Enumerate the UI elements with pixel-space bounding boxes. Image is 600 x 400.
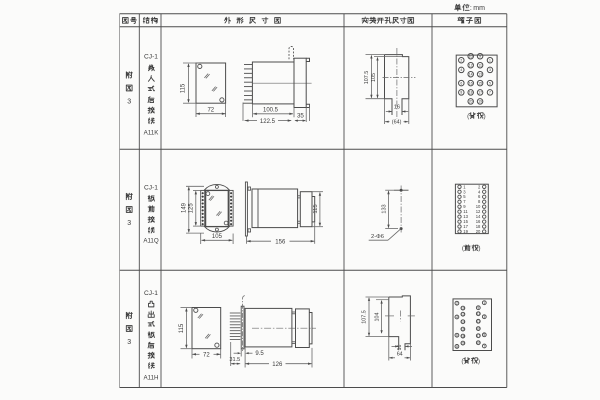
svg-text:A11Q: A11Q: [143, 237, 159, 244]
svg-text:18: 18: [469, 91, 473, 95]
svg-text:19: 19: [463, 229, 468, 234]
svg-text:12: 12: [469, 64, 473, 68]
svg-text:8: 8: [456, 345, 458, 349]
svg-text:107.5: 107.5: [362, 310, 368, 324]
svg-text:35: 35: [297, 112, 304, 119]
svg-text:A11K: A11K: [144, 130, 160, 137]
svg-text:CJ-1: CJ-1: [144, 53, 158, 60]
svg-text:): ): [484, 113, 486, 120]
svg-text:5: 5: [489, 81, 491, 85]
svg-text:15: 15: [476, 327, 480, 331]
svg-text:125: 125: [189, 203, 195, 214]
svg-text:2-Φ6: 2-Φ6: [371, 234, 384, 240]
svg-text:20: 20: [461, 342, 465, 346]
svg-text:16: 16: [397, 345, 403, 351]
svg-text:64: 64: [397, 352, 403, 358]
svg-text:13: 13: [476, 320, 480, 324]
svg-text:3: 3: [489, 68, 491, 72]
svg-text:4: 4: [456, 315, 458, 319]
svg-text:149: 149: [182, 202, 188, 213]
svg-text:9.5: 9.5: [255, 351, 264, 357]
svg-text:(64): (64): [392, 120, 402, 126]
svg-text:20: 20: [476, 229, 481, 234]
svg-text:19: 19: [476, 341, 480, 345]
svg-text:3: 3: [127, 220, 131, 227]
svg-text:7: 7: [483, 344, 485, 348]
svg-text:10: 10: [469, 55, 473, 59]
svg-text:105: 105: [371, 73, 377, 82]
svg-text:115: 115: [180, 83, 186, 93]
svg-text:): ): [478, 245, 480, 252]
svg-text:3: 3: [127, 99, 131, 106]
svg-text:14: 14: [469, 73, 473, 77]
svg-text:CJ-1: CJ-1: [144, 184, 158, 191]
svg-text:15: 15: [478, 81, 482, 85]
svg-text:72: 72: [203, 352, 210, 358]
svg-text:100.5: 100.5: [263, 108, 279, 114]
svg-text:115: 115: [179, 323, 185, 333]
svg-text:17: 17: [476, 334, 480, 338]
svg-text:18: 18: [461, 335, 465, 339]
svg-text:1: 1: [483, 301, 485, 305]
svg-text:126: 126: [272, 362, 283, 368]
svg-text:16: 16: [394, 105, 400, 111]
svg-text:): ): [478, 358, 480, 365]
svg-text:6: 6: [456, 334, 458, 338]
svg-text:8: 8: [460, 91, 462, 95]
svg-text:156: 156: [275, 239, 286, 245]
svg-text:A11H: A11H: [143, 375, 158, 382]
svg-text:6: 6: [460, 81, 462, 85]
svg-text:3: 3: [483, 315, 485, 319]
svg-text:72: 72: [207, 108, 214, 114]
svg-text:11: 11: [477, 312, 481, 316]
svg-text:9: 9: [479, 55, 481, 59]
svg-text:mm: mm: [473, 5, 485, 12]
svg-text:10: 10: [461, 307, 465, 311]
svg-text:31.5: 31.5: [229, 357, 240, 363]
svg-text:13: 13: [478, 73, 482, 77]
svg-text:CJ-1: CJ-1: [144, 290, 158, 297]
svg-text:17: 17: [478, 91, 482, 95]
svg-text:11: 11: [478, 64, 482, 68]
svg-text:16: 16: [469, 81, 473, 85]
svg-text:105: 105: [212, 234, 223, 240]
svg-text::: :: [470, 5, 472, 12]
svg-text:7: 7: [489, 91, 491, 95]
svg-text:122.5: 122.5: [260, 119, 276, 125]
svg-text:16: 16: [461, 328, 465, 332]
svg-text:133: 133: [382, 204, 388, 213]
svg-text:9: 9: [477, 306, 479, 310]
svg-text:12: 12: [461, 313, 465, 317]
svg-text:4: 4: [460, 68, 462, 72]
svg-text:104: 104: [375, 313, 381, 322]
svg-text:3: 3: [127, 339, 131, 346]
svg-text:2: 2: [456, 302, 458, 306]
svg-text:2: 2: [460, 59, 462, 63]
svg-text:19: 19: [478, 100, 482, 104]
svg-text:107.5: 107.5: [364, 71, 370, 85]
svg-text:20: 20: [469, 100, 473, 104]
svg-text:115: 115: [313, 204, 319, 213]
svg-text:5: 5: [483, 333, 485, 337]
svg-text:1: 1: [489, 59, 491, 63]
svg-text:14: 14: [461, 320, 465, 324]
